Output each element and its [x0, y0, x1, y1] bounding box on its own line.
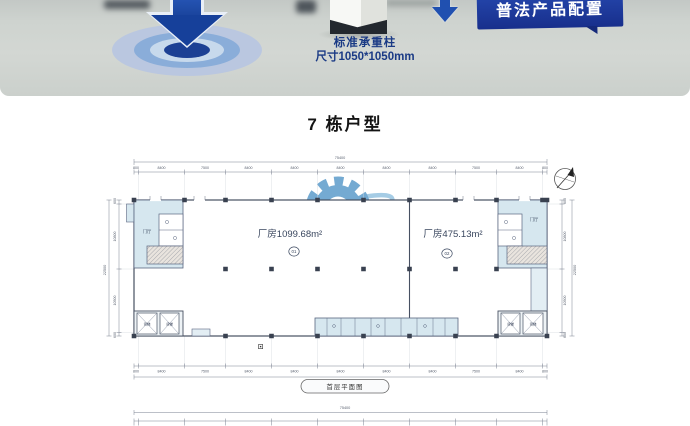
next-floor-plan-partial: 75400 [95, 402, 595, 426]
detail-marker [259, 345, 263, 349]
arrow-head [151, 15, 223, 46]
svg-text:600: 600 [563, 332, 567, 338]
svg-text:8400: 8400 [245, 370, 253, 374]
svg-text:10800: 10800 [563, 232, 567, 242]
svg-text:22500: 22500 [573, 265, 577, 276]
small-down-arrow-icon [432, 0, 458, 28]
svg-text:7500: 7500 [472, 166, 480, 170]
svg-text:800: 800 [542, 166, 548, 170]
svg-text:货梯: 货梯 [144, 322, 151, 327]
svg-text:8400: 8400 [429, 370, 437, 374]
hero-photo: 普法产品配置 标准承重柱 尺寸1050*1050mm [0, 0, 690, 96]
banner-label: 普法产品配置 [496, 0, 604, 21]
unit-right-label: 厂房475.13m² [423, 228, 482, 240]
dim-left: 22500 600 10800 10500 600 [103, 198, 122, 338]
svg-text:门厅: 门厅 [143, 228, 152, 235]
svg-text:600: 600 [563, 198, 567, 204]
page: 普法产品配置 标准承重柱 尺寸1050*1050mm 7 栋户型 [0, 0, 690, 426]
svg-text:8400: 8400 [158, 166, 166, 170]
svg-text:首层平面图: 首层平面图 [327, 382, 364, 391]
svg-text:8400: 8400 [516, 166, 524, 170]
svg-text:7500: 7500 [201, 166, 209, 170]
svg-text:8400: 8400 [245, 166, 253, 170]
background-equipment [385, 0, 437, 6]
building-outline [134, 200, 547, 336]
svg-text:800: 800 [133, 166, 139, 170]
dim-top: 75400 800 8400 7500 8400 8400 8400 8400 … [133, 156, 548, 175]
elevators-left: 货梯 货梯 [134, 311, 183, 336]
dim-right: 600 10800 10500 600 22500 [560, 198, 578, 338]
svg-text:02: 02 [445, 251, 450, 256]
svg-text:货梯: 货梯 [166, 322, 173, 327]
svg-text:75400: 75400 [335, 156, 346, 160]
svg-text:10500: 10500 [563, 296, 567, 306]
floor-plan: 75400 800 8400 7500 8400 8400 8400 8400 … [95, 148, 595, 400]
caption-line2: 尺寸1050*1050mm [285, 50, 445, 64]
small-arrow-head [432, 7, 458, 22]
column-base [330, 18, 387, 34]
svg-text:8400: 8400 [429, 166, 437, 170]
svg-text:7500: 7500 [472, 370, 480, 374]
next-plan-drawing: 75400 [95, 402, 595, 426]
banner-fold [585, 26, 597, 34]
unit-left-label: 厂房1099.68m² [258, 228, 322, 240]
svg-text:10800: 10800 [113, 232, 117, 242]
svg-text:8400: 8400 [337, 166, 345, 170]
svg-text:门厅: 门厅 [530, 216, 539, 223]
svg-text:75400: 75400 [340, 406, 351, 410]
svg-text:7500: 7500 [201, 370, 209, 374]
page-title: 7 栋户型 [0, 110, 690, 135]
svg-text:600: 600 [113, 332, 117, 338]
north-compass-icon [555, 167, 576, 190]
background-equipment [296, 0, 316, 13]
plan-caption: 首层平面图 [301, 380, 389, 394]
column-caption: 标准承重柱 尺寸1050*1050mm [285, 36, 445, 64]
svg-text:800: 800 [133, 370, 139, 374]
left-entry-block: 门厅 [127, 200, 184, 268]
svg-text:01: 01 [292, 249, 297, 254]
svg-text:800: 800 [542, 370, 548, 374]
svg-text:8400: 8400 [383, 370, 391, 374]
svg-text:8400: 8400 [337, 370, 345, 374]
svg-text:22500: 22500 [103, 265, 107, 276]
svg-text:8400: 8400 [383, 166, 391, 170]
svg-text:600: 600 [113, 198, 117, 204]
caption-line1: 标准承重柱 [285, 36, 445, 50]
background-equipment [104, 0, 150, 9]
banner: 普法产品配置 [477, 0, 624, 30]
arrow-body [173, 0, 201, 15]
floor-plan-drawing: 75400 800 8400 7500 8400 8400 8400 8400 … [95, 148, 595, 400]
load-bearing-column [330, 0, 387, 34]
svg-text:8400: 8400 [291, 166, 299, 170]
svg-text:8400: 8400 [291, 370, 299, 374]
svg-text:8400: 8400 [516, 370, 524, 374]
svg-text:货梯: 货梯 [507, 322, 514, 327]
svg-text:8400: 8400 [158, 370, 166, 374]
svg-text:货梯: 货梯 [530, 322, 537, 327]
svg-text:10500: 10500 [113, 296, 117, 306]
elevators-right: 货梯 货梯 [498, 311, 547, 336]
down-arrow-graphic [146, 0, 228, 56]
